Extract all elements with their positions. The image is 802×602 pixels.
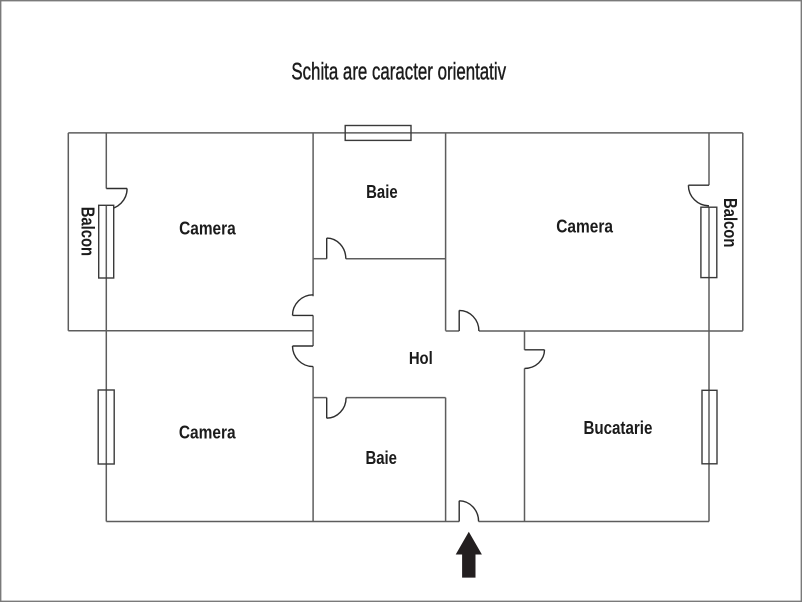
svg-text:Camera: Camera xyxy=(179,217,236,239)
svg-text:Camera: Camera xyxy=(556,215,613,237)
svg-text:Balcon: Balcon xyxy=(77,207,98,256)
svg-text:Hol: Hol xyxy=(409,349,433,369)
svg-text:Baie: Baie xyxy=(366,182,397,203)
svg-text:Schita are caracter orientativ: Schita are caracter orientativ xyxy=(291,58,506,85)
svg-text:Balcon: Balcon xyxy=(719,198,740,247)
svg-text:Camera: Camera xyxy=(179,421,236,443)
svg-text:Baie: Baie xyxy=(365,447,396,468)
svg-text:Bucatarie: Bucatarie xyxy=(583,417,652,438)
